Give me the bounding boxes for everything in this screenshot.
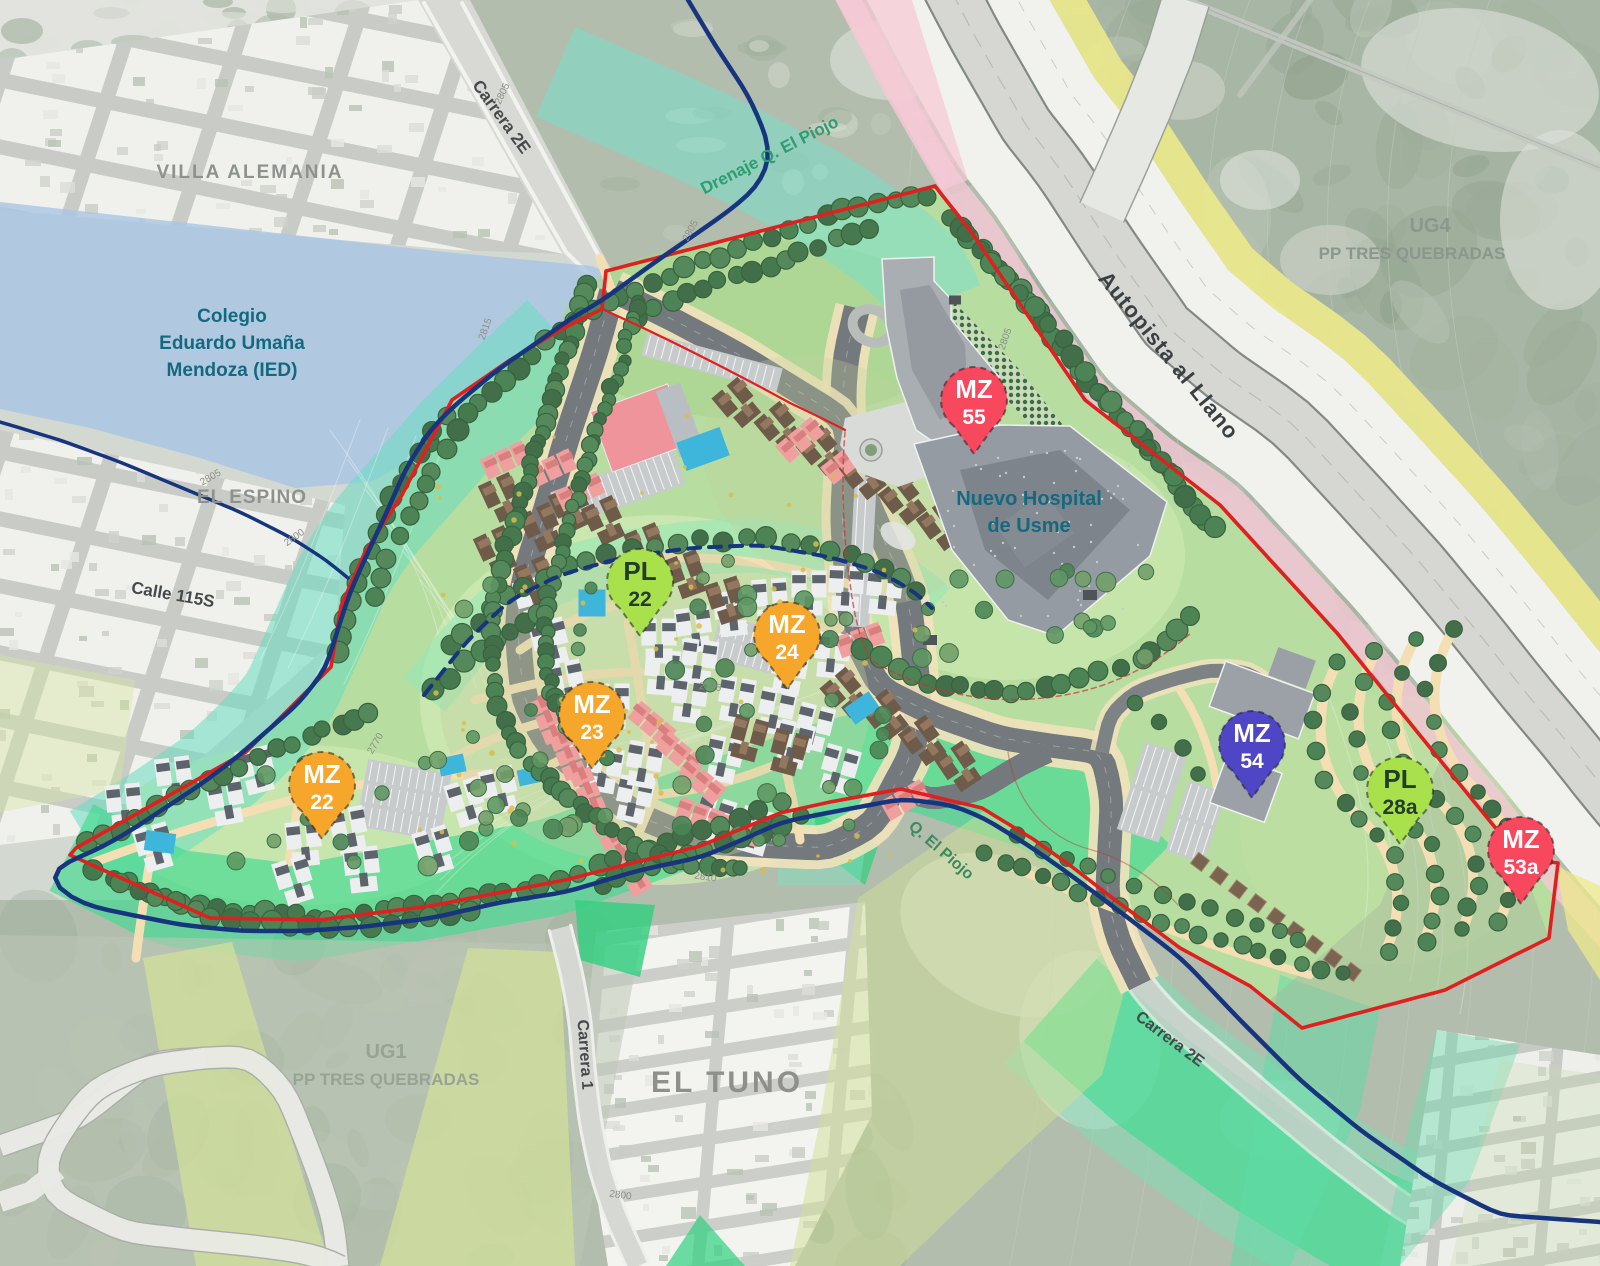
svg-text:UG4: UG4 [1409, 215, 1451, 237]
svg-text:PP TRES QUEBRADAS: PP TRES QUEBRADAS [293, 1070, 480, 1089]
svg-text:54: 54 [1240, 750, 1264, 773]
svg-text:Colegio: Colegio [197, 306, 267, 327]
svg-text:VILLA ALEMANIA: VILLA ALEMANIA [156, 162, 343, 183]
svg-text:24: 24 [775, 641, 799, 664]
svg-text:EL TUNO: EL TUNO [651, 1066, 803, 1099]
svg-text:MZ: MZ [573, 689, 611, 719]
svg-text:55: 55 [962, 406, 986, 429]
svg-text:EL ESPINO: EL ESPINO [197, 487, 307, 508]
svg-text:Eduardo Umaña: Eduardo Umaña [159, 333, 305, 354]
svg-text:Nuevo Hospital: Nuevo Hospital [956, 488, 1102, 510]
svg-text:de Usme: de Usme [987, 515, 1070, 537]
svg-text:2795: 2795 [699, 681, 723, 694]
svg-text:22: 22 [628, 588, 651, 611]
svg-text:MZ: MZ [768, 609, 806, 639]
svg-text:PL: PL [1383, 764, 1416, 794]
svg-text:PP TRES QUEBRADAS: PP TRES QUEBRADAS [1319, 244, 1506, 263]
svg-text:MZ: MZ [955, 374, 993, 404]
svg-text:22: 22 [310, 791, 333, 814]
svg-text:53a: 53a [1503, 856, 1538, 879]
svg-text:Mendoza (IED): Mendoza (IED) [167, 360, 298, 381]
svg-text:28a: 28a [1382, 796, 1417, 819]
svg-text:MZ: MZ [303, 759, 341, 789]
svg-text:PL: PL [623, 556, 656, 586]
svg-text:MZ: MZ [1233, 718, 1271, 748]
svg-text:23: 23 [580, 721, 603, 744]
svg-text:MZ: MZ [1502, 824, 1540, 854]
svg-text:UG1: UG1 [365, 1041, 406, 1063]
